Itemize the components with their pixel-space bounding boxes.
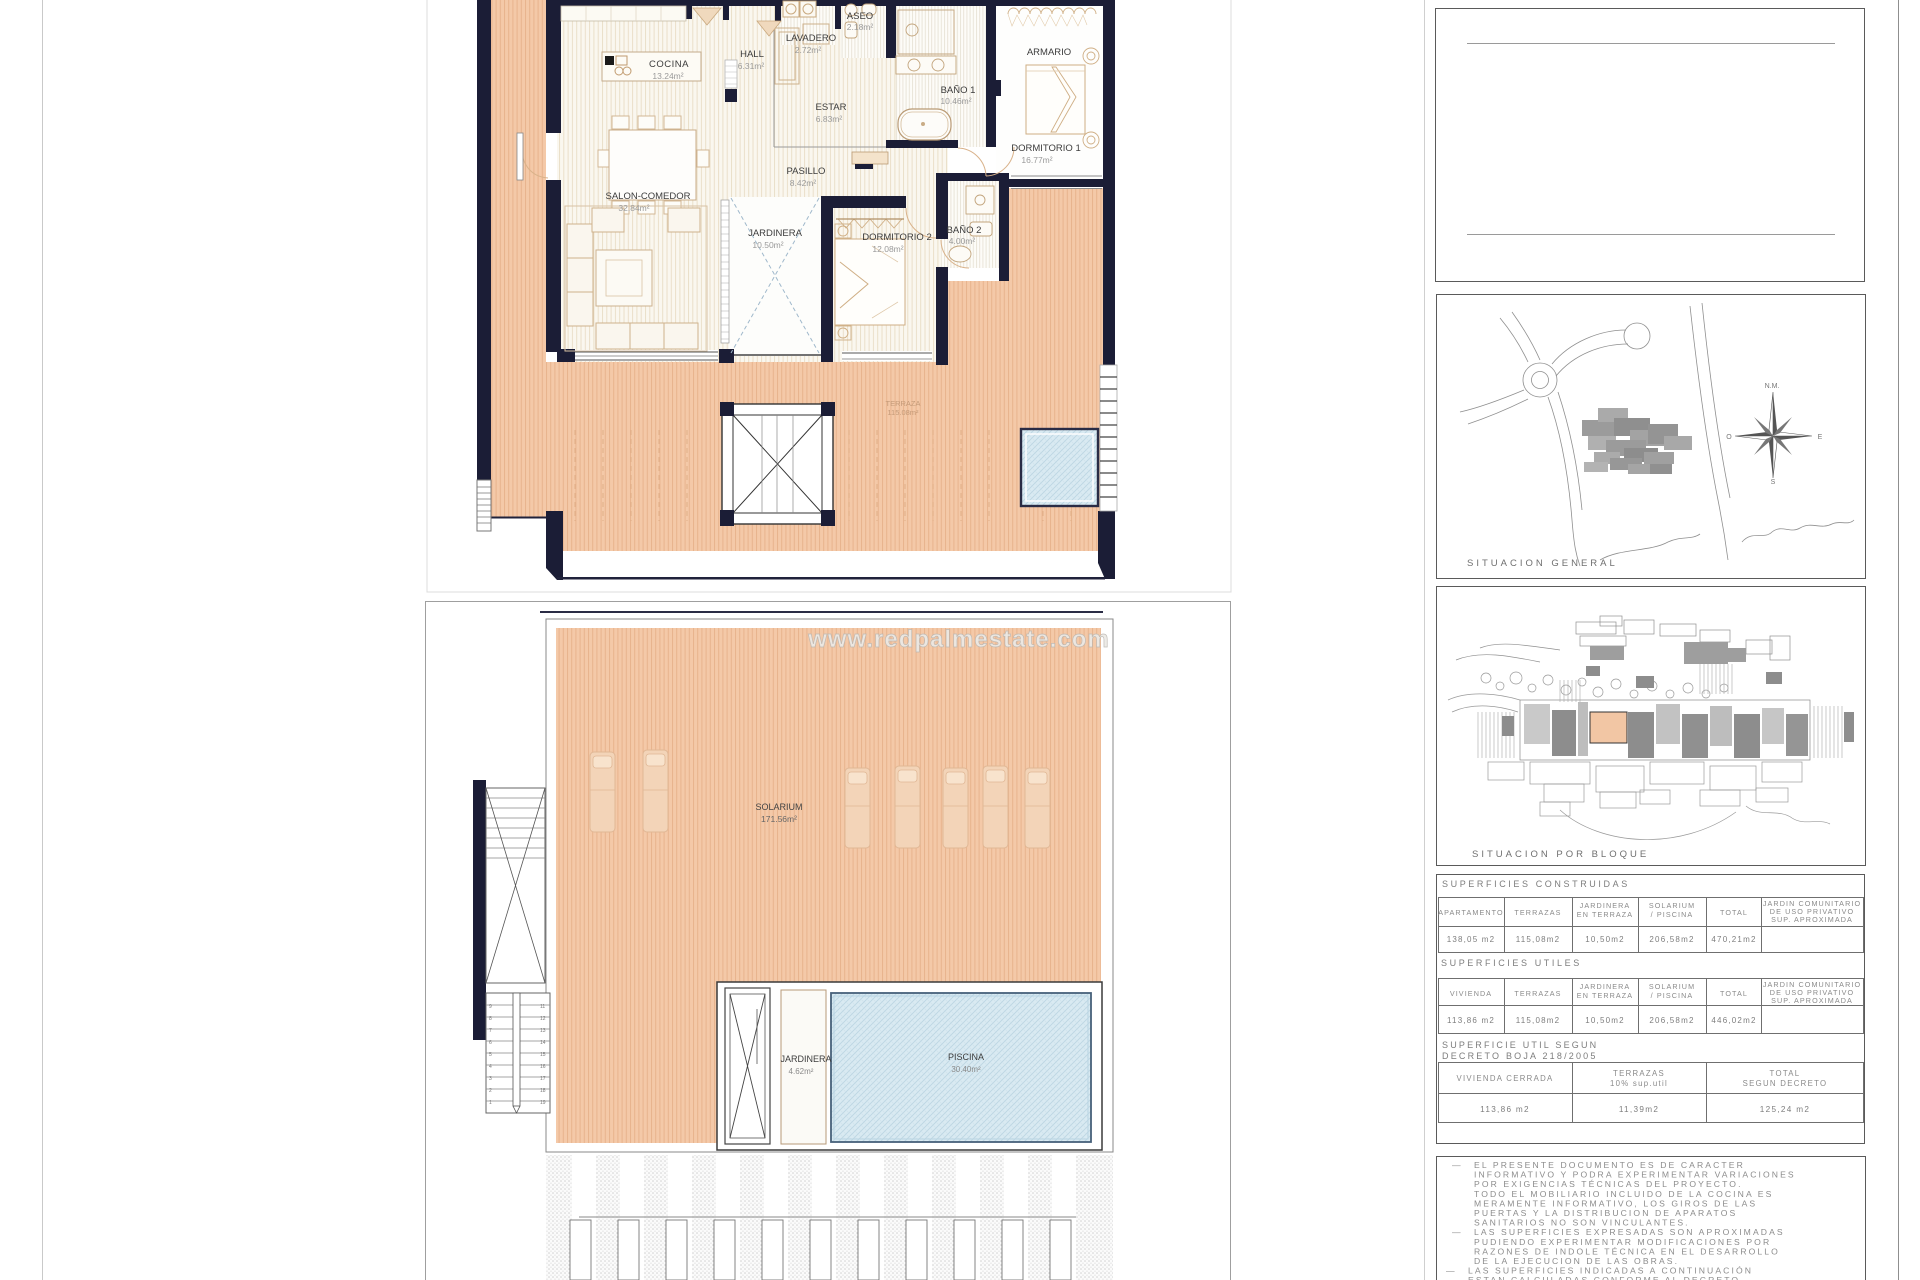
svg-text:DECRETO BOJA 218/2005: DECRETO BOJA 218/2005 <box>1442 1051 1598 1061</box>
svg-text:LAS SUPERFICIES EXPRESADAS SON: LAS SUPERFICIES EXPRESADAS SON APROXIMAD… <box>1474 1227 1785 1237</box>
svg-text:8.42m²: 8.42m² <box>790 178 817 188</box>
svg-text:SOLARIUM: SOLARIUM <box>755 802 802 812</box>
svg-text:/ PISCINA: / PISCINA <box>1651 910 1694 919</box>
svg-text:TODO EL MOBILIARIO INCLUIDO DE: TODO EL MOBILIARIO INCLUIDO DE LA COCINA… <box>1474 1189 1773 1199</box>
svg-text:SITUACION POR BLOQUE: SITUACION POR BLOQUE <box>1472 849 1649 860</box>
svg-text:1: 1 <box>489 1100 492 1106</box>
svg-text:12.08m²: 12.08m² <box>872 244 903 254</box>
svg-text:PASILLO: PASILLO <box>787 166 826 177</box>
svg-text:10.46m²: 10.46m² <box>940 96 971 106</box>
svg-text:16: 16 <box>540 1064 546 1070</box>
svg-text:DORMITORIO 2: DORMITORIO 2 <box>862 232 932 243</box>
svg-text:14: 14 <box>540 1040 546 1046</box>
svg-text:ESTAN CALCULADAS CONFORME AL D: ESTAN CALCULADAS CONFORME AL DECRETO <box>1468 1275 1740 1280</box>
svg-text:19: 19 <box>540 1100 546 1106</box>
svg-text:ASEO: ASEO <box>847 11 873 22</box>
svg-text:2: 2 <box>489 1088 492 1094</box>
svg-text:11,39m2: 11,39m2 <box>1619 1105 1659 1114</box>
svg-text:VIVIENDA: VIVIENDA <box>1450 989 1492 998</box>
svg-text:4.62m²: 4.62m² <box>789 1067 814 1076</box>
svg-text:SANITARIOS NO SON VINCULANTES.: SANITARIOS NO SON VINCULANTES. <box>1474 1218 1690 1228</box>
svg-text:30.40m²: 30.40m² <box>951 1065 981 1074</box>
svg-text:2.18m²: 2.18m² <box>847 22 874 32</box>
svg-text:SALON-COMEDOR: SALON-COMEDOR <box>606 191 691 202</box>
svg-text:BAÑO 2: BAÑO 2 <box>947 225 982 236</box>
svg-text:10.50m²: 10.50m² <box>752 240 783 250</box>
svg-text:125,24 m2: 125,24 m2 <box>1760 1105 1810 1114</box>
svg-text:13.24m²: 13.24m² <box>652 71 683 81</box>
svg-text:/ PISCINA: / PISCINA <box>1651 991 1694 1000</box>
svg-text:DE LA EJECUCION DE LAS OBRAS.: DE LA EJECUCION DE LAS OBRAS. <box>1474 1256 1679 1266</box>
svg-text:JARDINERA: JARDINERA <box>748 228 803 239</box>
svg-text:EN TERRAZA: EN TERRAZA <box>1577 910 1633 919</box>
svg-text:6.83m²: 6.83m² <box>816 114 843 124</box>
svg-text:COCINA: COCINA <box>649 59 689 70</box>
svg-text:—: — <box>1446 1266 1457 1276</box>
svg-text:SOLARIUM: SOLARIUM <box>1649 901 1695 910</box>
svg-text:—: — <box>1452 1160 1463 1170</box>
svg-text:TERRAZAS: TERRAZAS <box>1613 1069 1665 1078</box>
svg-text:446,02m2: 446,02m2 <box>1711 1016 1756 1025</box>
svg-text:SUPERFICIES UTILES: SUPERFICIES UTILES <box>1441 958 1582 968</box>
svg-text:15: 15 <box>540 1052 546 1058</box>
svg-text:N.M.: N.M. <box>1765 383 1780 390</box>
svg-text:6: 6 <box>489 1040 492 1046</box>
svg-text:11: 11 <box>540 1004 545 1010</box>
svg-text:POR EXIGENCIAS TÉCNICAS DEL PR: POR EXIGENCIAS TÉCNICAS DEL PROYECTO. <box>1474 1179 1743 1189</box>
svg-text:LAS SUPERFICIES INDICADAS A CO: LAS SUPERFICIES INDICADAS A CONTINUACIÓN <box>1468 1266 1753 1276</box>
svg-text:www.redpalmestate.com: www.redpalmestate.com <box>807 626 1110 653</box>
svg-text:8: 8 <box>489 1016 492 1022</box>
svg-text:TERRAZAS: TERRAZAS <box>1514 908 1561 917</box>
svg-text:INFORMATIVO Y PODRA EXPERIMENT: INFORMATIVO Y PODRA EXPERIMENTAR VARIACI… <box>1474 1170 1796 1180</box>
svg-text:HALL: HALL <box>740 49 764 60</box>
svg-text:113,86 m2: 113,86 m2 <box>1480 1105 1530 1114</box>
svg-text:S: S <box>1771 479 1776 486</box>
svg-text:SITUACION GENERAL: SITUACION GENERAL <box>1467 558 1618 569</box>
svg-text:SUP. APROXIMADA: SUP. APROXIMADA <box>1771 996 1853 1005</box>
svg-text:TOTAL: TOTAL <box>1720 908 1748 917</box>
svg-text:LAVADERO: LAVADERO <box>786 33 836 44</box>
svg-text:7: 7 <box>489 1028 492 1034</box>
svg-text:17: 17 <box>540 1076 546 1082</box>
svg-text:DORMITORIO 1: DORMITORIO 1 <box>1011 143 1081 154</box>
svg-text:PUDIENDO EXPERIMENTAR MODIFICA: PUDIENDO EXPERIMENTAR MODIFICACIONES POR <box>1474 1237 1771 1247</box>
svg-text:9: 9 <box>489 1004 492 1010</box>
svg-text:206,58m2: 206,58m2 <box>1649 935 1694 944</box>
svg-text:SEGUN DECRETO: SEGUN DECRETO <box>1743 1079 1828 1088</box>
svg-text:SOLARIUM: SOLARIUM <box>1649 982 1695 991</box>
svg-text:PUERTAS Y LA DISTRIBUCION DE A: PUERTAS Y LA DISTRIBUCION DE APARATOS <box>1474 1208 1737 1218</box>
svg-text:—: — <box>1452 1227 1463 1237</box>
svg-text:2.72m²: 2.72m² <box>795 45 822 55</box>
svg-text:115,08m2: 115,08m2 <box>1516 935 1561 944</box>
svg-text:O: O <box>1726 434 1732 441</box>
svg-text:RAZONES DE INDOLE TÉCNICA EN E: RAZONES DE INDOLE TÉCNICA EN EL DESARROL… <box>1474 1246 1780 1256</box>
svg-text:PISCINA: PISCINA <box>948 1052 984 1062</box>
svg-text:VIVIENDA CERRADA: VIVIENDA CERRADA <box>1456 1074 1553 1083</box>
svg-text:JARDINERA: JARDINERA <box>780 1054 831 1064</box>
svg-text:115.08m²: 115.08m² <box>887 408 919 417</box>
svg-text:JARDINERA: JARDINERA <box>1580 982 1631 991</box>
svg-text:10% sup.util: 10% sup.util <box>1610 1079 1668 1088</box>
svg-text:ESTAR: ESTAR <box>816 102 847 113</box>
svg-text:SUPERFICIES CONSTRUIDAS: SUPERFICIES CONSTRUIDAS <box>1442 879 1630 889</box>
svg-text:206,58m2: 206,58m2 <box>1649 1016 1694 1025</box>
svg-text:470,21m2: 470,21m2 <box>1711 935 1756 944</box>
svg-text:TOTAL: TOTAL <box>1720 989 1748 998</box>
svg-text:BAÑO 1: BAÑO 1 <box>941 85 976 96</box>
svg-text:EL PRESENTE DOCUMENTO ES DE CA: EL PRESENTE DOCUMENTO ES DE CARACTER <box>1474 1160 1745 1170</box>
svg-text:TERRAZAS: TERRAZAS <box>1514 989 1561 998</box>
svg-text:E: E <box>1818 434 1823 441</box>
svg-text:13: 13 <box>540 1028 546 1034</box>
svg-text:SUP. APROXIMADA: SUP. APROXIMADA <box>1771 915 1853 924</box>
svg-text:JARDINERA: JARDINERA <box>1580 901 1631 910</box>
svg-text:SUPERFICIE UTIL SEGUN: SUPERFICIE UTIL SEGUN <box>1442 1040 1598 1050</box>
svg-text:MERAMENTE INFORMATIVO, LOS GIR: MERAMENTE INFORMATIVO, LOS GIROS DE LAS <box>1474 1198 1757 1208</box>
svg-text:10,50m2: 10,50m2 <box>1585 935 1625 944</box>
svg-text:ARMARIO: ARMARIO <box>1027 47 1071 58</box>
svg-text:113,86 m2: 113,86 m2 <box>1447 1016 1495 1025</box>
svg-text:115,08m2: 115,08m2 <box>1516 1016 1561 1025</box>
svg-text:5: 5 <box>489 1052 492 1058</box>
svg-text:171.56m²: 171.56m² <box>761 814 797 824</box>
svg-text:10,50m2: 10,50m2 <box>1585 1016 1625 1025</box>
svg-text:4.00m²: 4.00m² <box>949 236 976 246</box>
svg-text:4: 4 <box>489 1064 492 1070</box>
svg-text:6.31m²: 6.31m² <box>738 61 765 71</box>
svg-text:32.84m²: 32.84m² <box>618 203 649 213</box>
svg-text:16.77m²: 16.77m² <box>1021 155 1052 165</box>
svg-text:138,05 m2: 138,05 m2 <box>1447 935 1496 944</box>
svg-text:EN TERRAZA: EN TERRAZA <box>1577 991 1633 1000</box>
svg-text:12: 12 <box>540 1016 546 1022</box>
svg-text:APARTAMENTO: APARTAMENTO <box>1438 908 1503 917</box>
svg-text:18: 18 <box>540 1088 546 1094</box>
svg-text:TERRAZA: TERRAZA <box>885 399 920 408</box>
svg-text:3: 3 <box>489 1076 492 1082</box>
svg-text:TOTAL: TOTAL <box>1770 1069 1801 1078</box>
